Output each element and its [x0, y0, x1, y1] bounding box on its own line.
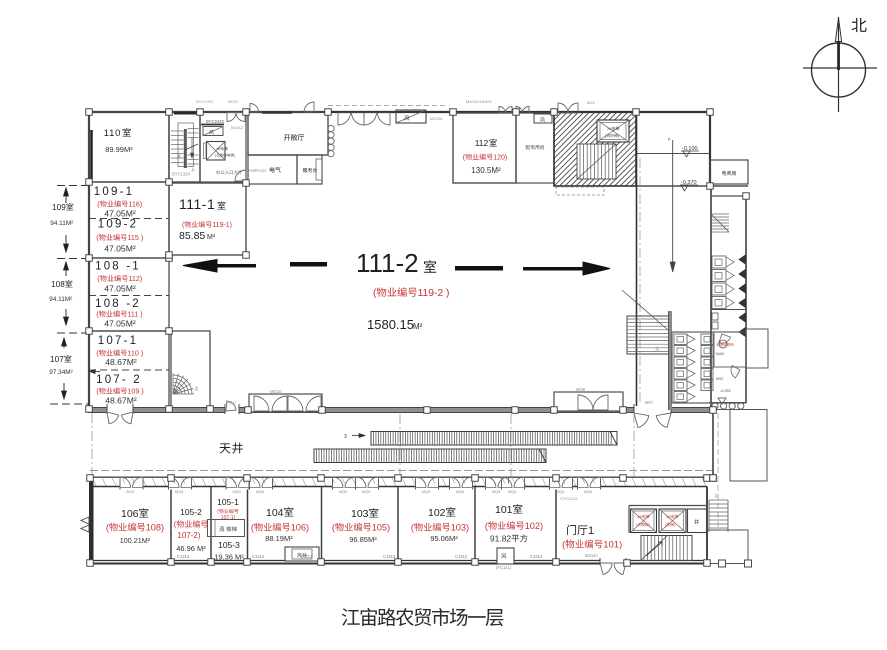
svg-text:47.05M²: 47.05M² [104, 284, 136, 294]
svg-text:111 ): 111 ) [127, 310, 142, 319]
svg-text:FM: FM [249, 169, 254, 173]
svg-text:48.67M²: 48.67M² [105, 357, 137, 367]
svg-text:119-1): 119-1) [212, 222, 232, 229]
svg-text:M²: M² [413, 322, 423, 331]
svg-text:109: 109 [52, 203, 66, 212]
svg-text:MQ6: MQ6 [556, 490, 564, 494]
svg-text:M23: M23 [127, 490, 134, 494]
svg-text:47.05M²: 47.05M² [104, 209, 136, 219]
svg-text:MQ10: MQ10 [270, 389, 282, 394]
svg-text:101): 101) [603, 540, 622, 551]
svg-text:C1212: C1212 [383, 554, 396, 559]
svg-text:94.11M²: 94.11M² [50, 220, 73, 227]
svg-text:BYC1324: BYC1324 [172, 172, 191, 177]
svg-text:M1024: M1024 [430, 116, 443, 121]
svg-text:19.36 M²: 19.36 M² [214, 553, 244, 562]
svg-text:85.85: 85.85 [179, 230, 205, 242]
svg-text:102: 102 [428, 507, 446, 519]
svg-text:103): 103) [451, 523, 469, 533]
svg-text:M214o: M214o [585, 553, 598, 558]
svg-text:MQ8: MQ8 [576, 387, 586, 392]
svg-text:C1212: C1212 [252, 554, 265, 559]
svg-text:116): 116) [128, 200, 142, 209]
svg-text:111-2: 111-2 [356, 248, 419, 278]
svg-text:107: 107 [50, 355, 64, 364]
svg-text:(: ( [373, 288, 377, 299]
svg-text:106): 106) [291, 523, 309, 533]
svg-text:112: 112 [475, 138, 489, 148]
svg-text:88.19M²: 88.19M² [265, 534, 293, 543]
svg-text:C1212: C1212 [455, 554, 468, 559]
svg-text:C1212: C1212 [177, 554, 190, 559]
svg-text:47.05M²: 47.05M² [104, 319, 136, 329]
svg-text:M02: M02 [716, 377, 723, 381]
svg-text:94.11M²: 94.11M² [49, 296, 72, 303]
svg-text:106: 106 [121, 508, 139, 520]
svg-text:95.06M²: 95.06M² [430, 534, 458, 543]
svg-text:47.05M²: 47.05M² [104, 244, 136, 254]
svg-text:109-1: 109-1 [94, 186, 134, 198]
svg-text:3: 3 [344, 434, 347, 440]
svg-text:M022: M022 [228, 99, 239, 104]
svg-text:89.99M²: 89.99M² [105, 145, 133, 154]
svg-text:3#: 3# [637, 514, 642, 519]
svg-text:MQ4: MQ4 [175, 490, 183, 494]
svg-text:F: F [668, 137, 671, 142]
svg-text:M1024 M1024: M1024 M1024 [466, 99, 492, 104]
svg-text:120): 120) [493, 155, 507, 162]
svg-text:MQ11: MQ11 [226, 401, 236, 405]
svg-text:2#: 2# [607, 126, 612, 131]
svg-text:105-3: 105-3 [218, 540, 240, 550]
svg-text:96.85M²: 96.85M² [349, 535, 377, 544]
svg-text:109-2: 109-2 [98, 219, 138, 231]
svg-text:109 ): 109 ) [127, 387, 143, 396]
svg-text:FC1212: FC1212 [564, 497, 578, 501]
svg-text:105): 105) [372, 523, 390, 533]
svg-text:108 -1: 108 -1 [95, 261, 141, 273]
svg-text:107- 2: 107- 2 [96, 374, 142, 386]
svg-text:MQ5: MQ5 [256, 490, 264, 494]
svg-text:MQ5: MQ5 [362, 490, 370, 494]
svg-text:M1012: M1012 [231, 125, 244, 130]
svg-text:111-1: 111-1 [179, 196, 215, 212]
svg-text:105-2: 105-2 [180, 507, 202, 517]
svg-text:): ) [234, 154, 235, 158]
svg-text:(: ( [332, 523, 335, 533]
svg-text:MQ5: MQ5 [422, 490, 430, 494]
svg-text:(: ( [106, 523, 109, 533]
svg-text:119-2 ): 119-2 ) [418, 288, 450, 299]
svg-text:M07: M07 [645, 400, 654, 405]
svg-text:112): 112) [128, 274, 142, 283]
svg-text:104: 104 [266, 507, 284, 519]
svg-text:MQ4: MQ4 [233, 490, 241, 494]
svg-text:MQ6: MQ6 [508, 490, 516, 494]
svg-text:M24: M24 [587, 100, 596, 105]
svg-text:MQ6: MQ6 [492, 490, 500, 494]
svg-text:1: 1 [588, 525, 594, 537]
svg-text:130.5M²: 130.5M² [471, 166, 501, 175]
svg-text:MQ6: MQ6 [584, 490, 592, 494]
svg-text:1580.15: 1580.15 [367, 317, 414, 332]
svg-text:108: 108 [51, 280, 65, 289]
svg-text:MQ5: MQ5 [339, 490, 347, 494]
svg-text:-0.050: -0.050 [720, 389, 731, 393]
svg-text:115 ): 115 ) [127, 233, 143, 242]
svg-text:91.82: 91.82 [490, 534, 512, 544]
svg-text:103: 103 [351, 508, 369, 520]
svg-text:(: ( [174, 520, 177, 529]
svg-text:(: ( [485, 521, 488, 531]
svg-text:MQ5: MQ5 [456, 490, 464, 494]
svg-text:C1212: C1212 [530, 554, 543, 559]
svg-text:4#: 4# [666, 514, 671, 519]
svg-text:(: ( [251, 523, 254, 533]
svg-text:97.34M²: 97.34M² [49, 369, 72, 376]
svg-text:(: ( [411, 523, 414, 533]
svg-text:48.67M²: 48.67M² [105, 396, 137, 406]
svg-text:MAN: MAN [716, 352, 724, 356]
svg-text:102): 102) [525, 521, 543, 531]
svg-text:BYC2432: BYC2432 [206, 119, 225, 124]
svg-text:105-1: 105-1 [217, 497, 239, 507]
svg-text:110: 110 [104, 128, 122, 139]
svg-text:108): 108) [146, 523, 164, 533]
svg-text:M²: M² [207, 234, 216, 241]
svg-text:107-1: 107-1 [98, 335, 138, 347]
svg-text:BYC2452: BYC2452 [196, 99, 214, 104]
svg-text:C1212: C1212 [300, 554, 313, 559]
svg-text:107-1): 107-1) [221, 515, 236, 521]
svg-text:107-2): 107-2) [177, 531, 200, 540]
svg-text:101: 101 [495, 504, 513, 516]
svg-text:1022: 1022 [258, 169, 266, 173]
svg-text:108 -2: 108 -2 [95, 298, 141, 310]
svg-text:46.96 M²: 46.96 M² [176, 544, 206, 553]
svg-text:(FC141): (FC141) [496, 565, 512, 570]
svg-text:100.21M²: 100.21M² [120, 536, 151, 545]
